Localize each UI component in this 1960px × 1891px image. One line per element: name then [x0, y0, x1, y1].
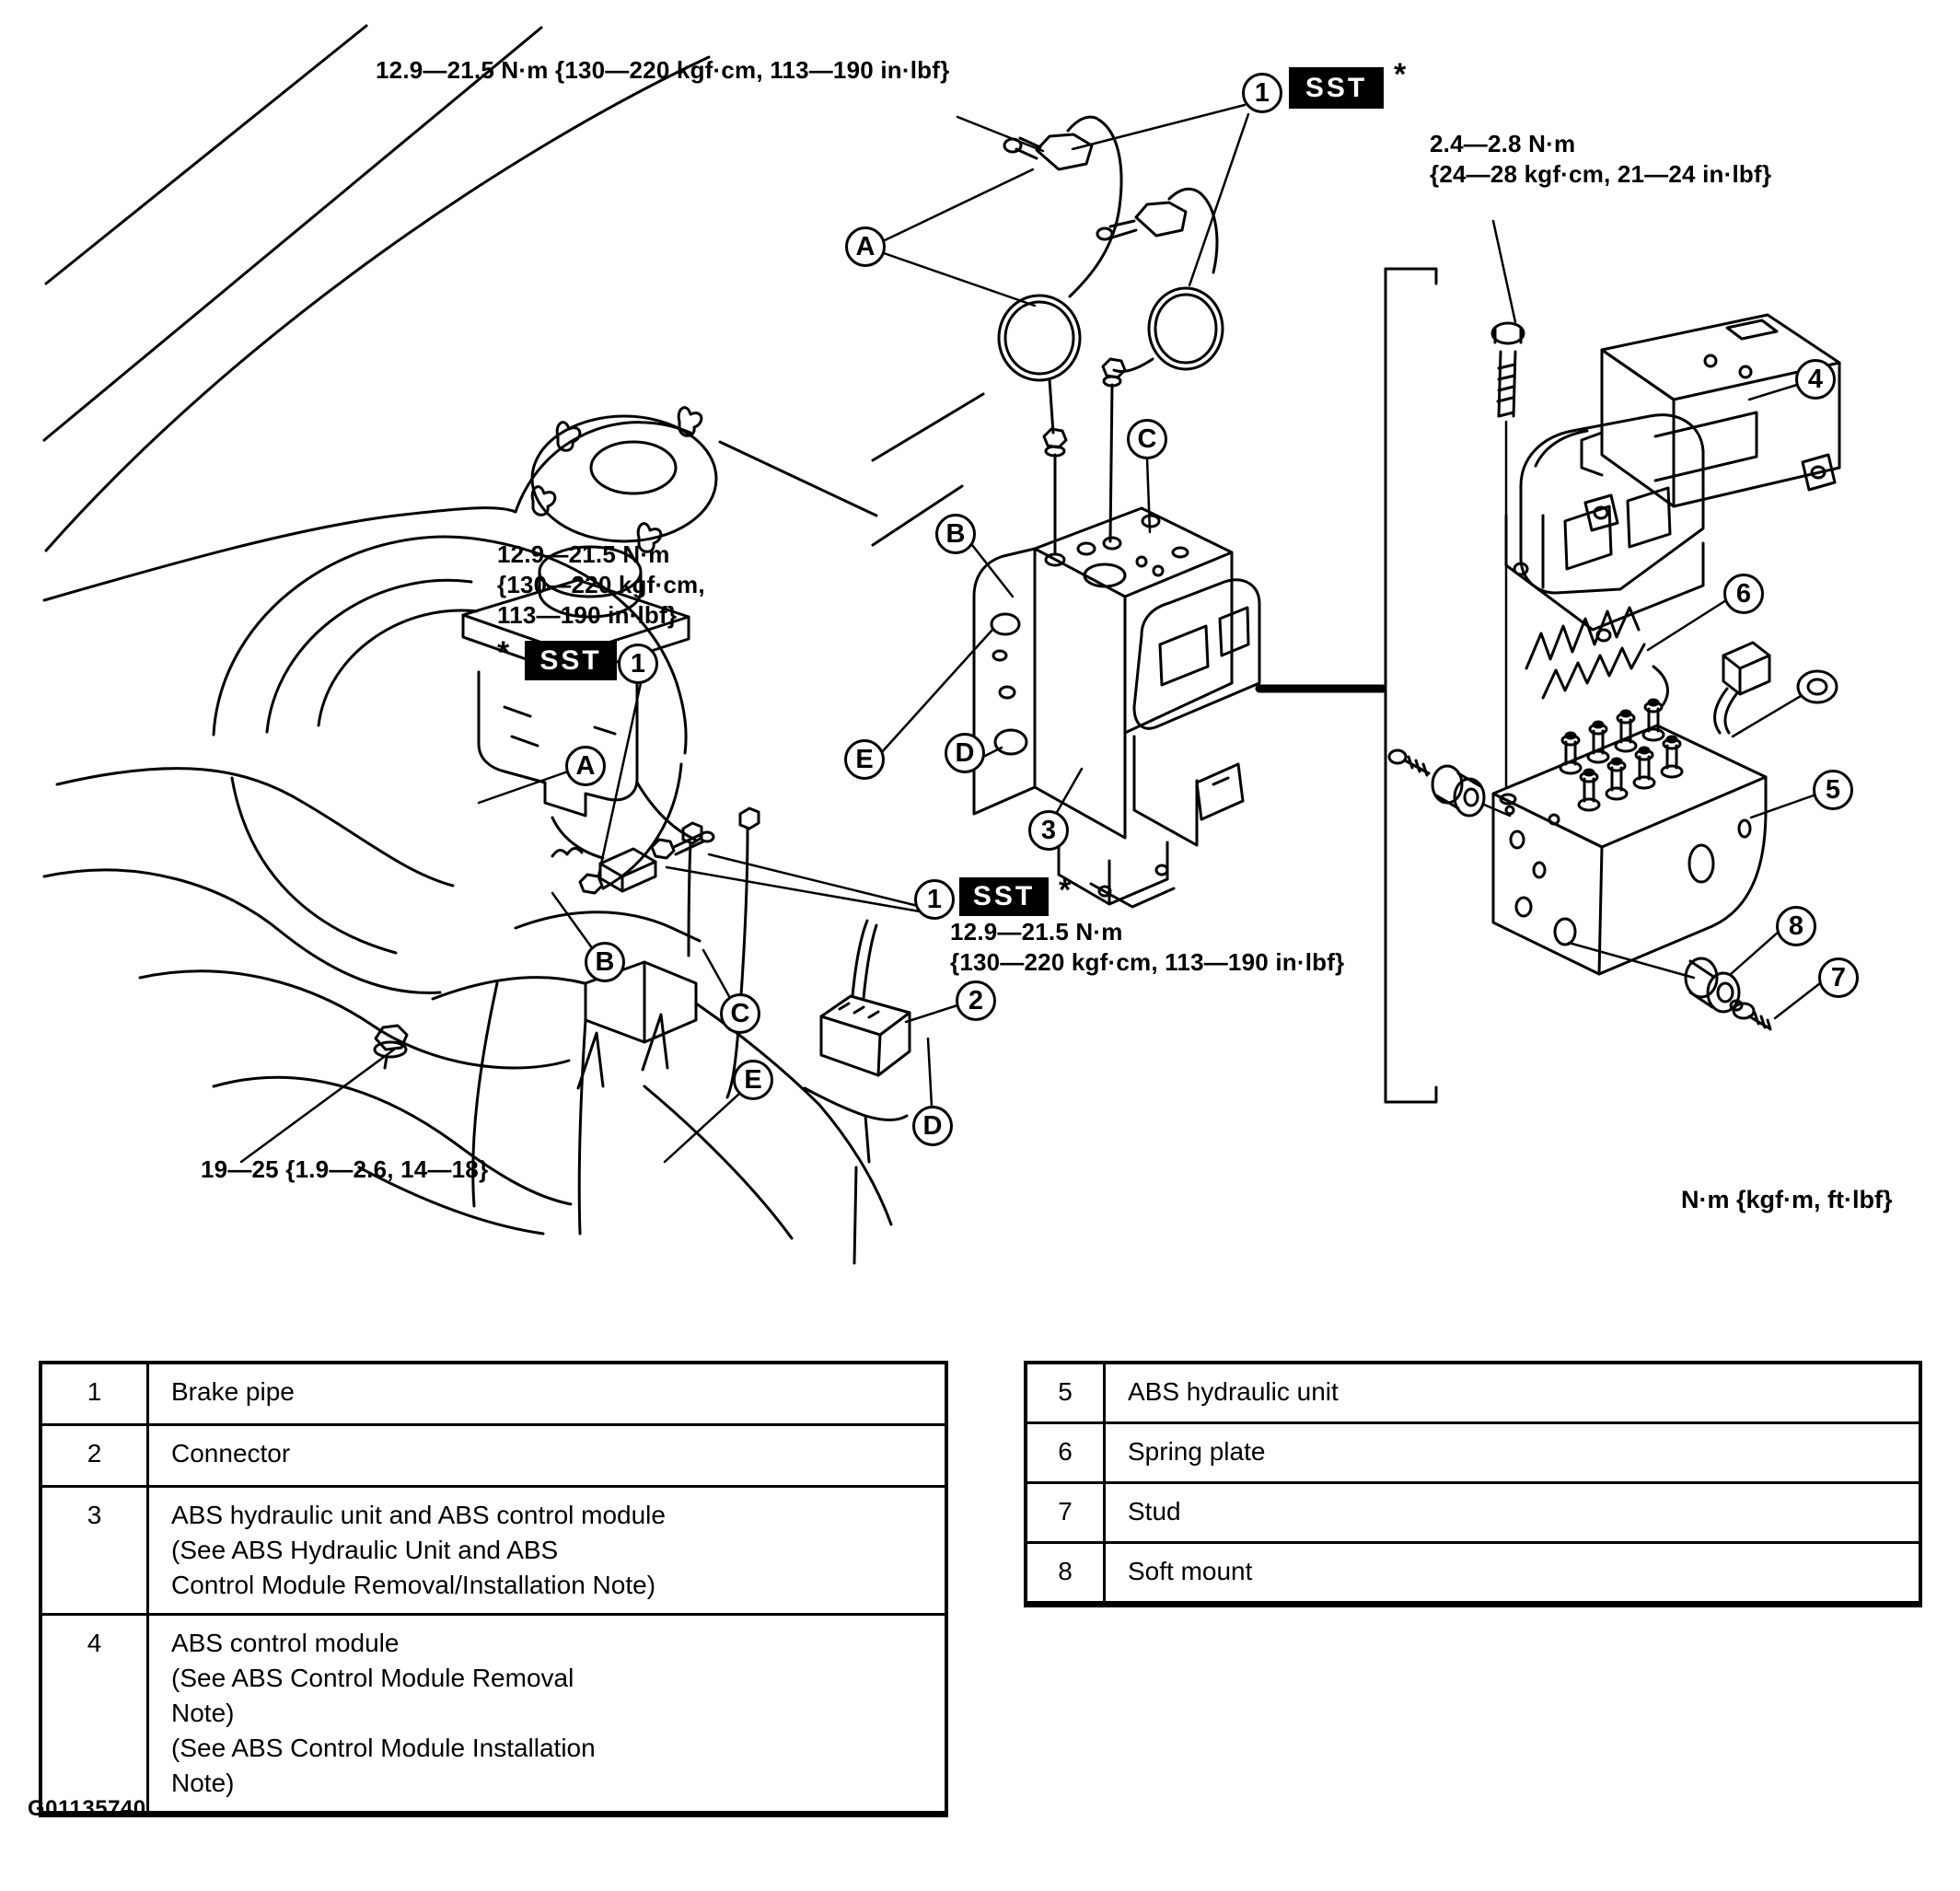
- callout-6: 6: [1723, 574, 1764, 614]
- legend-item-number: 6: [1027, 1424, 1106, 1481]
- legend-item-desc: Spring plate: [1106, 1424, 1919, 1481]
- table-row: 4 ABS control module (See ABS Control Mo…: [42, 1616, 945, 1811]
- units-note: N·m {kgf·m, ft·lbf}: [1681, 1186, 1892, 1213]
- callout-d-abs: D: [945, 733, 985, 773]
- callout-3: 3: [1028, 810, 1069, 851]
- callout-c-abs: C: [1127, 419, 1167, 459]
- callout-e-abs: E: [844, 739, 885, 780]
- callout-b-engine: B: [585, 942, 625, 982]
- sst-box-mid: SST: [525, 641, 617, 680]
- torque-label-mid-left: 12.9—21.5 N·m {130—220 kgf·cm, 113—190 i…: [497, 539, 705, 631]
- callout-e-engine: E: [733, 1060, 773, 1100]
- torque-label-bottom-left: 19—25 {1.9—2.6, 14—18}: [201, 1154, 488, 1185]
- callout-8: 8: [1776, 906, 1816, 946]
- sst-asterisk-top: *: [1394, 59, 1406, 90]
- legend-item-desc: ABS hydraulic unit and ABS control modul…: [149, 1488, 945, 1613]
- legend-item-desc: Soft mount: [1106, 1544, 1919, 1601]
- legend-item-desc: Brake pipe: [149, 1364, 945, 1423]
- table-row: 2 Connector: [42, 1426, 945, 1488]
- brake-pipes: [999, 117, 1223, 552]
- connector: [805, 921, 910, 1263]
- car-body-lines: [44, 26, 983, 600]
- legend-item-desc: ABS hydraulic unit: [1106, 1364, 1919, 1421]
- callout-4: 4: [1795, 359, 1836, 400]
- table-row: 7 Stud: [1027, 1484, 1919, 1544]
- callout-1-top: 1: [1242, 73, 1282, 113]
- callout-7: 7: [1818, 957, 1859, 998]
- table-row: 3 ABS hydraulic unit and ABS control mod…: [42, 1488, 945, 1616]
- table-row: 8 Soft mount: [1027, 1544, 1919, 1601]
- legend-item-desc: ABS control module (See ABS Control Modu…: [149, 1616, 945, 1811]
- torque-label-top: 12.9—21.5 N·m {130—220 kgf·cm, 113—190 i…: [376, 55, 949, 86]
- legend-item-number: 5: [1027, 1364, 1106, 1421]
- sst-box-center: SST: [959, 877, 1049, 916]
- callout-5: 5: [1813, 770, 1853, 810]
- legend-table-left: 1 Brake pipe 2 Connector 3 ABS hydraulic…: [39, 1361, 948, 1817]
- callout-2: 2: [956, 980, 996, 1021]
- callout-c-engine: C: [720, 993, 760, 1034]
- legend-item-desc: Stud: [1106, 1484, 1919, 1541]
- figure-id: G01135740: [28, 1797, 146, 1821]
- legend-item-number: 1: [42, 1364, 149, 1423]
- sst-asterisk-center: *: [1059, 875, 1071, 906]
- callout-1-mid: 1: [618, 644, 658, 684]
- sst-asterisk-mid: *: [497, 637, 509, 668]
- service-manual-diagram: 12.9—21.5 N·m {130—220 kgf·cm, 113—190 i…: [0, 0, 1960, 1891]
- torque-label-right: 2.4—2.8 N·m {24—28 kgf·cm, 21—24 in·lbf}: [1430, 129, 1771, 190]
- legend-table-right: 5 ABS hydraulic unit 6 Spring plate 7 St…: [1024, 1361, 1922, 1607]
- callout-a-pipes: A: [845, 226, 886, 267]
- table-row: 6 Spring plate: [1027, 1424, 1919, 1484]
- sst-box-top: SST: [1289, 67, 1384, 109]
- table-row: 1 Brake pipe: [42, 1364, 945, 1426]
- abs-unit-assembly: [974, 508, 1259, 907]
- table-row: 5 ABS hydraulic unit: [1027, 1364, 1919, 1424]
- abs-hydraulic-unit: [1389, 643, 1837, 1029]
- cowl-panel: [433, 912, 891, 1238]
- legend-item-number: 3: [42, 1488, 149, 1613]
- legend-item-number: 2: [42, 1426, 149, 1485]
- spring-plate: [1526, 608, 1667, 705]
- legend-item-number: 4: [42, 1616, 149, 1811]
- leader-lines: [241, 105, 1820, 1162]
- legend-item-number: 8: [1027, 1544, 1106, 1601]
- callout-1-center: 1: [914, 879, 955, 920]
- callout-d-engine: D: [912, 1106, 953, 1146]
- callout-b-abs: B: [935, 514, 976, 554]
- abs-control-module: [1506, 315, 1839, 641]
- legend-item-number: 7: [1027, 1484, 1106, 1541]
- torque-label-center: 12.9—21.5 N·m {130—220 kgf·cm, 113—190 i…: [950, 917, 1344, 978]
- callout-a-master: A: [565, 746, 606, 786]
- legend-item-desc: Connector: [149, 1426, 945, 1485]
